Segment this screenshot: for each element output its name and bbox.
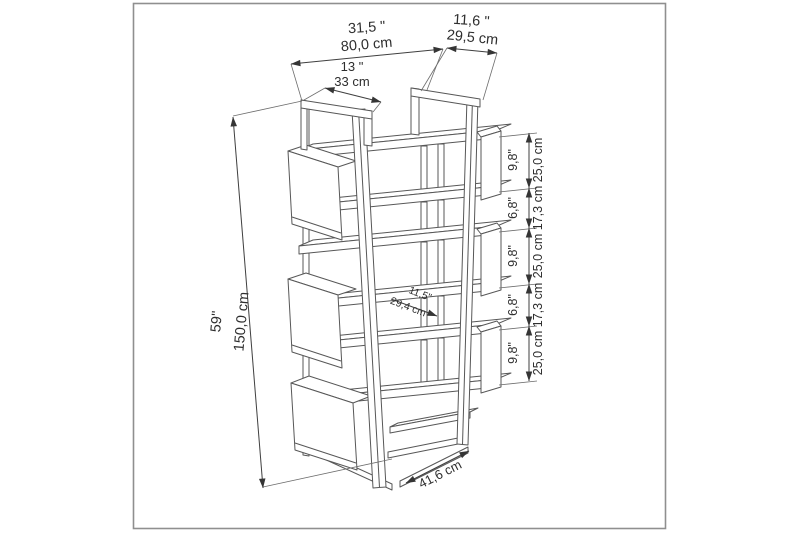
box-side-panel <box>477 321 501 393</box>
spacing-1-cm-label: 25,0 cm <box>531 138 545 182</box>
spacing-5-inches-label: 9,8" <box>506 342 520 364</box>
spacing-2-cm-label: 17,3 cm <box>531 186 545 230</box>
spacing-1-inches-label: 9,8" <box>506 149 520 171</box>
right-side-panels <box>477 126 501 393</box>
top-compartment-cm-label: 33 cm <box>334 74 369 89</box>
box-side-panel <box>477 223 501 296</box>
spacing-5-cm-label: 25,0 cm <box>531 331 545 375</box>
spacing-4-cm-label: 17,3 cm <box>531 283 545 327</box>
overall-depth-inches-label: 11,6 " <box>453 12 490 30</box>
top-compartment-inches-label: 13 " <box>341 59 364 74</box>
box-side-panel <box>477 126 501 200</box>
overall-width-inches-label: 31,5 " <box>348 19 386 38</box>
spacing-2-inches-label: 6,8" <box>506 197 520 219</box>
overall-height-inches-label: 59" <box>208 310 226 333</box>
spacing-3-inches-label: 9,8" <box>506 245 520 267</box>
spacing-4-inches-label: 6,8" <box>506 294 520 316</box>
spacing-3-cm-label: 25,0 cm <box>531 234 545 278</box>
bookcase-dimension-diagram: 31,5 " 80,0 cm 11,6 " 29,5 cm 13 " 33 cm… <box>0 0 800 533</box>
